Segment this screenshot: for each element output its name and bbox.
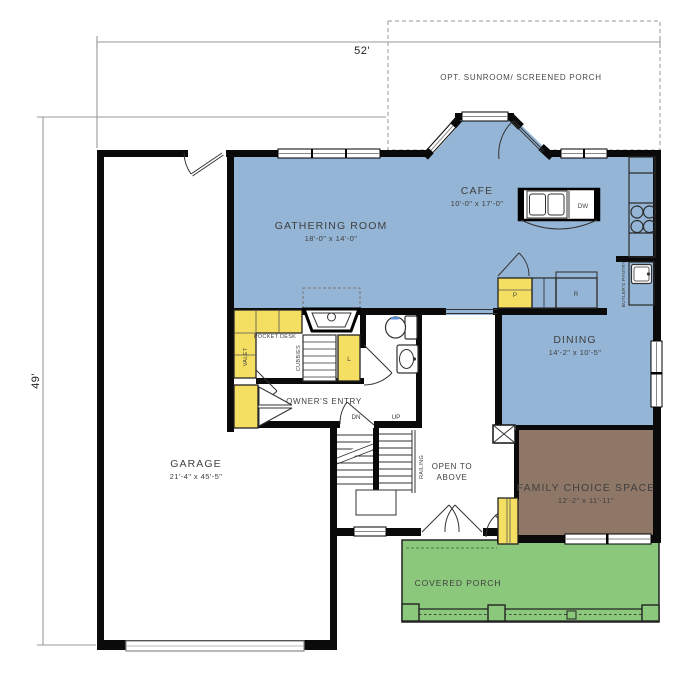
owners-entry-label: OWNER'S ENTRY (286, 397, 362, 406)
open-to-above-line2: ABOVE (436, 473, 467, 482)
open-to-above-line1: OPEN TO (432, 462, 473, 471)
dining-dims: 14'-2" x 10'-5" (549, 348, 602, 357)
toilet (386, 316, 418, 339)
powder-door (364, 345, 392, 385)
stairs-down-label: DN (351, 414, 361, 421)
floor-plan-drawing: 52' 49' OPT. SUNROOM/ SCREENED PORCH CAF… (0, 0, 700, 700)
porch-post (642, 605, 659, 621)
garage-dims: 21'-4" x 45'-5" (170, 472, 223, 481)
entry-closet (234, 385, 258, 428)
window-mullion (651, 372, 662, 375)
chase-box (493, 425, 515, 443)
family-closet (498, 498, 518, 544)
wall-garage-gathering (227, 157, 234, 432)
porch-post (402, 604, 419, 621)
garage-label: GARAGE (170, 458, 222, 470)
floor-plan-canvas: 52' 49' OPT. SUNROOM/ SCREENED PORCH CAF… (0, 0, 700, 700)
pocket-desk-label: POCKET DESK (254, 334, 296, 340)
valet-label: VALET (243, 347, 249, 366)
porch-post (488, 605, 505, 621)
powder-sink (397, 345, 418, 373)
dining-label: DINING (553, 334, 596, 346)
dining-fill (495, 308, 658, 428)
wall-powder-west (360, 308, 366, 348)
family-label: FAMILY CHOICE SPACE (517, 482, 656, 494)
wall-gathering-south-b (358, 308, 446, 315)
pantry-label: P (513, 292, 517, 299)
porch-step-block (567, 611, 576, 619)
cafe-dims: 10'-0" x 17'-0" (451, 199, 504, 208)
stair-railing (412, 430, 416, 493)
pocket-desk-counter (234, 310, 302, 378)
family-dims: 12'-2" x 11'-11" (558, 496, 614, 505)
cubbies-label: CUBBIES (296, 345, 302, 371)
stairs-up-label: UP (392, 414, 401, 421)
porch-label: COVERED PORCH (415, 578, 502, 588)
gathering-label: GATHERING ROOM (275, 220, 388, 232)
wall-dining-west (495, 308, 502, 425)
stair-treads-up (379, 434, 412, 490)
wall-family-north (516, 425, 661, 430)
linen-label: L (347, 356, 351, 363)
window-mullion (583, 149, 585, 158)
dim-depth-label: 49' (30, 373, 42, 389)
railing-label: RAILING (419, 455, 425, 479)
sunroom-label: OPT. SUNROOM/ SCREENED PORCH (440, 73, 601, 82)
wall-dining-north (493, 308, 607, 315)
wall-powder-south (374, 421, 422, 428)
gathering-dims: 18'-0" x 14'-0" (305, 234, 358, 243)
wall-garage-east (330, 425, 337, 650)
window-mullion (345, 149, 347, 158)
window-mullion (606, 534, 609, 544)
dim-width-label: 52' (354, 45, 370, 57)
stair-landing (356, 490, 396, 515)
wall-stair-center (373, 428, 379, 490)
dishwasher-label: DW (578, 203, 589, 210)
wall-exterior-left (97, 150, 104, 647)
window-mullion (311, 149, 313, 158)
french-door-gap (421, 526, 483, 537)
cubbies-unit (303, 335, 336, 381)
cafe-label: CAFE (461, 185, 493, 197)
butlers-pantry-label: BUTLER'S PANTRY (621, 260, 627, 307)
refrigerator-label: R (574, 291, 579, 298)
